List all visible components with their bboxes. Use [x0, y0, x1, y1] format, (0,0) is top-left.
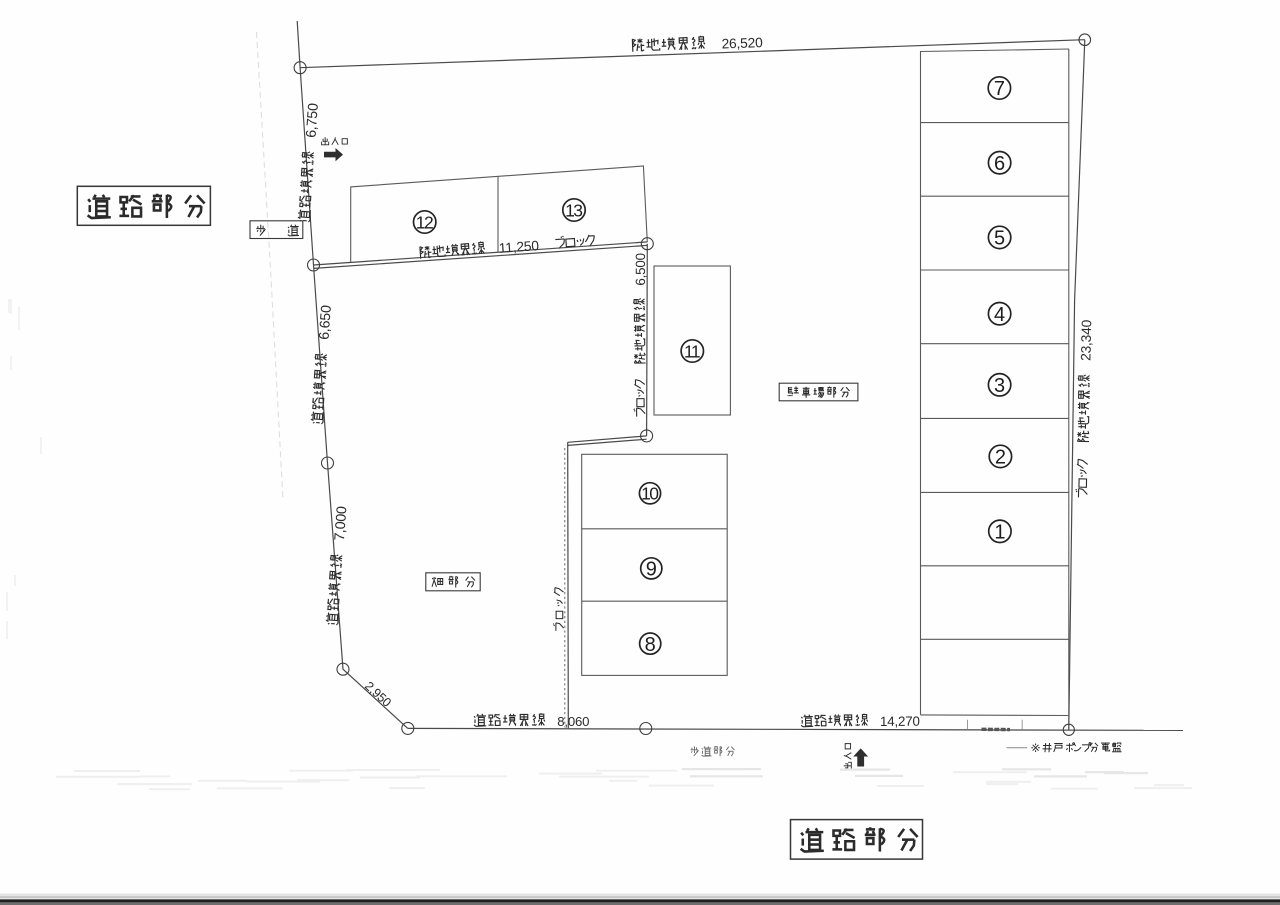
svg-text:8,060: 8,060 — [557, 714, 589, 729]
svg-text:6,650: 6,650 — [316, 304, 334, 340]
svg-text:11: 11 — [684, 341, 700, 361]
svg-text:2: 2 — [995, 447, 1006, 469]
svg-text:11,250: 11,250 — [498, 238, 539, 256]
svg-text:3: 3 — [994, 375, 1005, 397]
svg-text:5: 5 — [994, 228, 1005, 250]
svg-text:6,750: 6,750 — [303, 102, 321, 138]
svg-text:23,340: 23,340 — [1078, 319, 1094, 361]
svg-text:13: 13 — [565, 200, 582, 220]
svg-text:8: 8 — [645, 634, 656, 656]
svg-text:6: 6 — [994, 153, 1005, 175]
svg-text:26,520: 26,520 — [721, 35, 763, 51]
svg-text:6,500: 6,500 — [633, 253, 648, 286]
svg-text:7: 7 — [994, 78, 1005, 100]
svg-text:7,000: 7,000 — [332, 505, 351, 541]
svg-text:9: 9 — [646, 559, 657, 581]
svg-text:4: 4 — [994, 304, 1005, 326]
svg-text:14,270: 14,270 — [880, 714, 920, 729]
svg-text:1: 1 — [994, 522, 1005, 544]
svg-text:10: 10 — [641, 484, 659, 504]
svg-text:12: 12 — [416, 212, 433, 232]
